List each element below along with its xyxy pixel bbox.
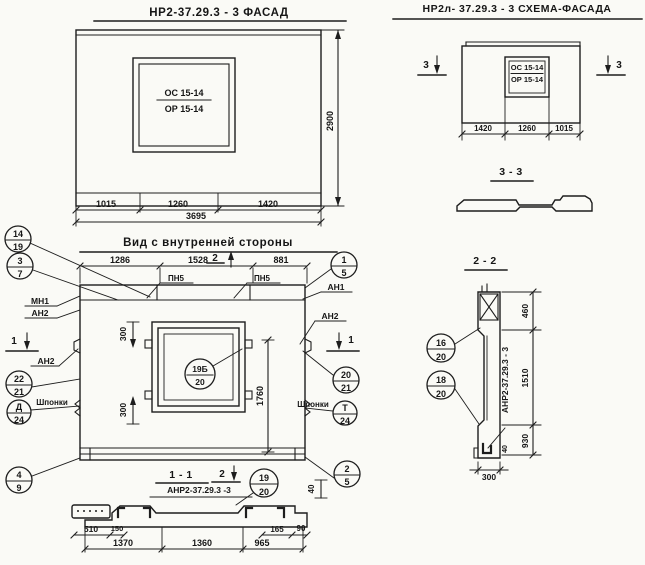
section-1-1-sublabel: АНР2-37.29.3 -3 [167, 485, 231, 495]
right-anchor-notch [305, 339, 311, 353]
dim-965: 965 [254, 538, 269, 548]
callout-4-9-top: 4 [16, 470, 21, 480]
mn1-label: МН1 [31, 296, 49, 306]
section-3-3-profile [457, 196, 592, 211]
callout-2-5-bottom: 5 [344, 477, 349, 487]
anchor-hook-3 [246, 508, 252, 517]
inner-dim-40: 40 [307, 484, 316, 493]
dim-300-thickness: 300 [482, 472, 496, 482]
dim-150: 150 [111, 524, 124, 533]
section-1-1: 1 - 1 2 АНР2-37.29.3 -3 19 20 510 150 1 [71, 466, 310, 552]
pn5-label-1: ПН5 [168, 274, 185, 283]
callout-20-21-top: 20 [341, 370, 351, 380]
anchor-hook-2 [144, 508, 150, 517]
facade-title: НР2-37.29.3 - 3 ФАСАД [149, 7, 288, 19]
callout-2-5-top: 2 [344, 464, 349, 474]
section-3-3-title: 3 - 3 [499, 166, 523, 178]
schema-cut-left-num: 3 [423, 60, 429, 71]
anchor-hook-1 [118, 508, 124, 517]
cut-1-left-num: 1 [11, 336, 17, 347]
an2-label-left-mid: АН2 [37, 356, 54, 366]
facade-window-mark-top: ОС 15-14 [164, 88, 203, 98]
inner-dim-881: 881 [273, 255, 288, 265]
cut-2-top-marker: 2 [207, 251, 234, 267]
callout-19-20-top: 19 [259, 473, 269, 483]
section-2-2-outline [478, 292, 500, 458]
callout-t-24-top: Т [342, 403, 348, 413]
inner-dim-1528: 1528 [188, 255, 208, 265]
callout-d-24-top: Д [16, 402, 23, 412]
callout-16-20-top: 16 [436, 338, 446, 348]
dim-1510: 1510 [520, 368, 530, 387]
section-2-2-mark-label: АНР2-37.29.3 - 3 [500, 347, 510, 413]
schema-dim-1420: 1420 [474, 124, 492, 133]
inner-view: Вид с внутренней стороны 1286 1528 881 2… [74, 237, 337, 460]
dim-165: 165 [270, 525, 284, 534]
schema-cut-mark-right: 3 [597, 56, 625, 75]
callout-22-21-bottom: 21 [14, 387, 24, 397]
inner-dim-300-bottom: 300 [118, 403, 128, 417]
pn5-label-2: ПН5 [254, 274, 271, 283]
callout-1-5-top: 1 [341, 255, 346, 265]
callout-16-20-bottom: 20 [436, 352, 446, 362]
shponki-label-right: Шпонки [297, 400, 329, 409]
callout-14-19-top: 14 [13, 229, 23, 239]
section-2-2-top-hooks [482, 284, 487, 292]
schema-window-mark-bottom: ОР 15-14 [511, 75, 544, 84]
dim-90: 90 [297, 524, 306, 533]
inner-view-title: Вид с внутренней стороны [123, 237, 293, 249]
an2-label-right: АН2 [321, 311, 338, 321]
facade-dim-height: 2900 [325, 111, 335, 131]
cut-1-right-num: 1 [348, 335, 354, 346]
schema-dim-1015: 1015 [555, 124, 573, 133]
cut-1-left-marker: 1 [6, 333, 38, 351]
section-2-2-title: 2 - 2 [473, 255, 497, 267]
schema-dim-1260: 1260 [518, 124, 536, 133]
cut-1-right-marker: 1 [327, 333, 359, 351]
facade-dim-1260: 1260 [168, 199, 188, 209]
drawing-canvas: НР2-37.29.3 - 3 ФАСАД ОС 15-14 ОР 15-14 … [0, 0, 645, 565]
dim-1370: 1370 [113, 538, 133, 548]
callout-3-7-bottom: 7 [17, 269, 22, 279]
callout-20-21-bottom: 21 [341, 383, 351, 393]
callout-1-5-bottom: 5 [341, 268, 346, 278]
left-anchor-notch [74, 339, 80, 353]
schema-cut-mark-left: 3 [418, 56, 446, 75]
callout-19b-20-bottom: 20 [195, 377, 205, 387]
shponki-label-left: Шпонки [36, 398, 68, 407]
facade-view: НР2-37.29.3 - 3 ФАСАД ОС 15-14 ОР 15-14 … [73, 7, 346, 226]
schema-cut-right-num: 3 [616, 60, 622, 71]
inner-dim-300-top: 300 [118, 327, 128, 341]
blueprint-sheet: НР2-37.29.3 - 3 ФАСАД ОС 15-14 ОР 15-14 … [0, 0, 645, 565]
cut-2-bottom-marker: 2 [212, 466, 240, 482]
dim-930: 930 [520, 434, 530, 448]
section-1-1-title: 1 - 1 [169, 469, 193, 481]
left-keyways [75, 400, 80, 416]
cut-2-bottom-num: 2 [219, 469, 225, 480]
an2-label-left-top: АН2 [31, 308, 48, 318]
dim-1360: 1360 [192, 538, 212, 548]
callout-t-24-bottom: 24 [340, 416, 350, 426]
dim-460: 460 [520, 304, 530, 318]
callout-3-7-top: 3 [17, 256, 22, 266]
callout-18-20-bottom: 20 [436, 389, 446, 399]
callout-d-24-bottom: 24 [14, 415, 24, 425]
facade-dim-total: 3695 [186, 211, 206, 221]
inner-right-callouts: 1 5 АН1 АН2 1 20 21 Шпонки Т 24 2 5 40 [297, 252, 360, 498]
inner-dim-1760: 1760 [255, 386, 265, 406]
dim-40-section: 40 [502, 445, 509, 453]
callout-19b-20-top: 19Б [192, 364, 208, 374]
schema-window-mark-top: ОС 15-14 [511, 63, 544, 72]
section-2-2: 2 - 2 16 20 18 20 АНР2-37.29.3 - 3 460 1… [427, 255, 541, 482]
facade-dim-1015: 1015 [96, 199, 116, 209]
dim-510: 510 [84, 524, 98, 534]
callout-19-20-bottom: 20 [259, 487, 269, 497]
callout-4-9-bottom: 9 [16, 483, 21, 493]
callout-18-20-top: 18 [436, 375, 446, 385]
schema-title: НР2л- 37.29.3 - 3 СХЕМА-ФАСАДА [422, 3, 611, 15]
schema-view: НР2л- 37.29.3 - 3 СХЕМА-ФАСАДА ОС 15-14 … [393, 3, 642, 140]
section-3-3: 3 - 3 [457, 166, 592, 211]
anchor-hook-4 [278, 508, 284, 517]
callout-14-19-bottom: 19 [13, 242, 23, 252]
an1-label: АН1 [327, 282, 344, 292]
callout-22-21-top: 22 [14, 374, 24, 384]
facade-dim-1420: 1420 [258, 199, 278, 209]
inner-dim-1286: 1286 [110, 255, 130, 265]
facade-window-mark-bottom: ОР 15-14 [165, 104, 204, 114]
